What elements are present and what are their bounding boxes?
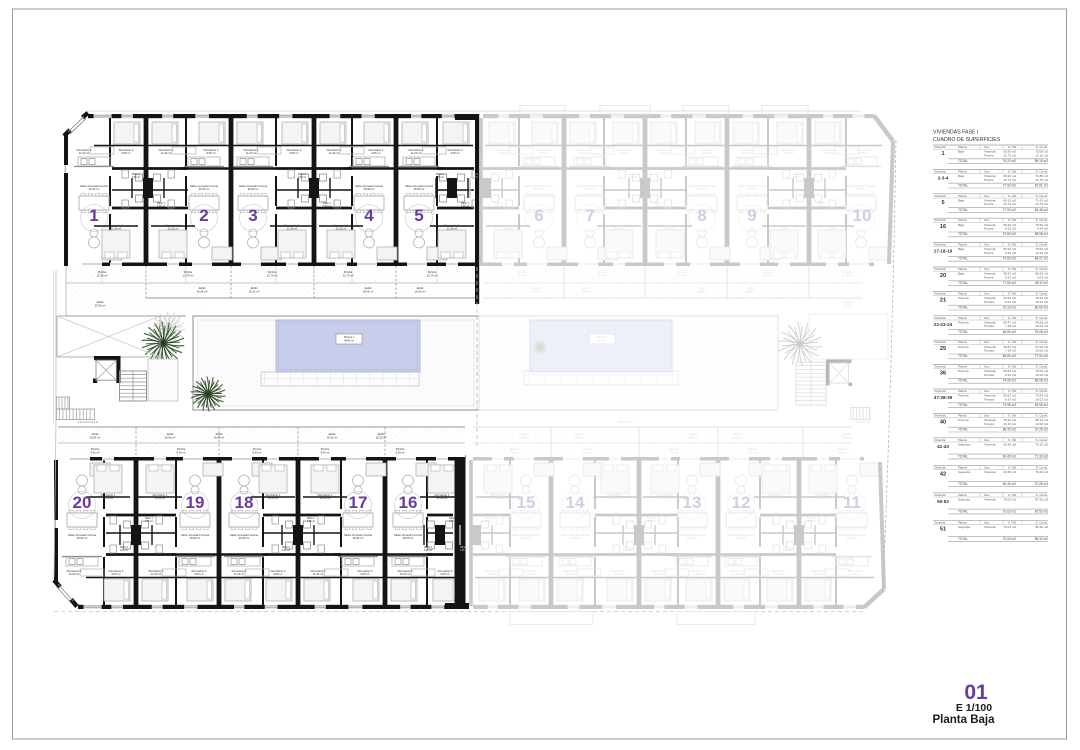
svg-text:3.05 m²: 3.05 m²: [629, 176, 637, 179]
svg-text:20.90 m²: 20.90 m²: [747, 187, 758, 191]
svg-text:Jardín: Jardín: [215, 432, 223, 436]
svg-text:10.03 m2: 10.03 m2: [1035, 324, 1048, 328]
svg-text:TOTAL: TOTAL: [958, 257, 968, 261]
svg-text:9.05 m²: 9.05 m²: [121, 151, 130, 155]
svg-text:3.05 m²: 3.05 m²: [623, 549, 631, 552]
svg-text:Vivienda: Vivienda: [934, 493, 946, 497]
svg-text:87.53 m2: 87.53 m2: [1035, 497, 1048, 501]
svg-text:Jardín: Jardín: [698, 286, 706, 290]
svg-text:Porche: Porche: [344, 270, 353, 274]
svg-text:7.18 m2: 7.18 m2: [1005, 324, 1016, 328]
svg-text:Porche: Porche: [984, 178, 994, 182]
svg-text:S. Útil: S. Útil: [1008, 290, 1016, 295]
svg-text:Vivienda: Vivienda: [934, 365, 946, 369]
svg-text:Vivienda: Vivienda: [984, 442, 996, 446]
svg-text:Porche: Porche: [184, 270, 193, 274]
svg-text:Jardín: Jardín: [733, 432, 741, 436]
svg-text:Porche: Porche: [843, 270, 852, 274]
svg-text:S. Útil: S. Útil: [1008, 492, 1016, 497]
svg-text:Jardín: Jardín: [843, 432, 851, 436]
svg-text:83.56 m2: 83.56 m2: [1035, 403, 1049, 407]
svg-text:3.05 m²: 3.05 m²: [132, 176, 140, 179]
svg-text:60.45 m2: 60.45 m2: [1003, 470, 1016, 474]
svg-text:74.95 m2: 74.95 m2: [1003, 379, 1017, 383]
svg-text:Jardín: Jardín: [166, 432, 174, 436]
svg-text:Vivienda: Vivienda: [934, 389, 946, 393]
svg-text:70.13 m2: 70.13 m2: [1003, 305, 1017, 309]
svg-text:20.90 m²: 20.90 m²: [364, 187, 375, 191]
svg-text:11.00 m²: 11.00 m²: [818, 496, 829, 500]
svg-text:9.05 m²: 9.05 m²: [851, 572, 860, 576]
svg-text:11.00 m²: 11.00 m²: [779, 227, 790, 231]
svg-text:S. Útil: S. Útil: [1008, 193, 1016, 198]
svg-text:22-23-24: 22-23-24: [934, 322, 953, 327]
svg-text:11.00 m²: 11.00 m²: [437, 496, 448, 500]
svg-text:9.05 m²: 9.05 m²: [289, 151, 298, 155]
svg-text:S. Útil: S. Útil: [1008, 519, 1016, 524]
svg-text:S. Útil: S. Útil: [1008, 168, 1016, 173]
svg-text:9.03 m2: 9.03 m2: [1037, 275, 1048, 279]
svg-text:S. Const.: S. Const.: [1036, 145, 1049, 149]
svg-text:Porche: Porche: [98, 270, 107, 274]
svg-text:17: 17: [349, 493, 368, 512]
svg-text:2: 2: [199, 206, 208, 225]
svg-text:77.93 m2: 77.93 m2: [1003, 183, 1017, 187]
svg-text:9.05 m²: 9.05 m²: [360, 572, 369, 576]
svg-text:Uso: Uso: [984, 465, 990, 469]
svg-text:3.05 m²: 3.05 m²: [461, 205, 469, 208]
svg-text:Porche: Porche: [764, 270, 773, 274]
svg-text:E 1/100: E 1/100: [956, 702, 992, 714]
svg-text:TOTAL: TOTAL: [958, 509, 968, 513]
svg-text:11.00 m²: 11.00 m²: [579, 151, 590, 155]
svg-text:Baja: Baja: [958, 174, 964, 178]
svg-text:16.05 m²: 16.05 m²: [532, 290, 543, 294]
svg-text:16.30 m²: 16.30 m²: [376, 436, 387, 440]
svg-text:Porche: Porche: [91, 447, 100, 451]
svg-text:9.05 m²: 9.05 m²: [859, 151, 868, 155]
svg-text:23.20 m²: 23.20 m²: [843, 304, 854, 308]
svg-text:11.00 m²: 11.00 m²: [660, 151, 671, 155]
svg-text:9.05 m²: 9.05 m²: [440, 572, 449, 576]
svg-text:S. Útil: S. Útil: [1008, 388, 1016, 393]
svg-text:12.30 m²: 12.30 m²: [97, 274, 108, 278]
svg-text:Vivienda: Vivienda: [934, 438, 946, 442]
svg-text:Terraza: Terraza: [984, 300, 994, 304]
svg-text:Primera: Primera: [958, 418, 969, 422]
svg-text:3.05 m²: 3.05 m²: [818, 205, 826, 208]
svg-text:3.05 m²: 3.05 m²: [120, 549, 128, 552]
svg-text:20.90 m²: 20.90 m²: [687, 536, 698, 540]
svg-text:TOTAL: TOTAL: [958, 354, 968, 358]
svg-text:11.00 m²: 11.00 m²: [824, 151, 835, 155]
svg-text:Porche: Porche: [984, 153, 994, 157]
svg-text:11.00 m²: 11.00 m²: [320, 496, 331, 500]
svg-text:1: 1: [89, 206, 98, 225]
svg-text:16.05 m²: 16.05 m²: [197, 290, 208, 294]
svg-text:77.93 m2: 77.93 m2: [1003, 208, 1017, 212]
svg-text:11.00 m²: 11.00 m²: [155, 496, 166, 500]
svg-text:9.05 m²: 9.05 m²: [620, 151, 629, 155]
svg-text:10.02 m2: 10.02 m2: [1035, 373, 1048, 377]
svg-text:1: 1: [941, 151, 944, 157]
svg-text:85.08 m2: 85.08 m2: [1035, 232, 1049, 236]
svg-text:TOTAL: TOTAL: [958, 305, 968, 309]
svg-text:3.05 m²: 3.05 m²: [323, 205, 331, 208]
svg-text:15: 15: [517, 493, 536, 512]
svg-text:2-3-4: 2-3-4: [938, 175, 949, 180]
svg-text:Uso: Uso: [984, 340, 990, 344]
svg-text:TOTAL: TOTAL: [958, 281, 968, 285]
svg-text:85.08 m2: 85.08 m2: [1035, 379, 1049, 383]
svg-text:9.05 m²: 9.05 m²: [526, 572, 535, 576]
svg-text:Planta Baja: Planta Baja: [933, 714, 996, 726]
svg-text:12.70 m²: 12.70 m²: [517, 274, 528, 278]
svg-text:11.00 m²: 11.00 m²: [614, 227, 625, 231]
svg-text:S. Útil: S. Útil: [1008, 412, 1016, 417]
svg-text:14: 14: [566, 493, 585, 512]
svg-text:7: 7: [585, 206, 594, 225]
svg-text:3.05 m²: 3.05 m²: [648, 520, 656, 523]
svg-text:Planta: Planta: [958, 340, 967, 344]
svg-text:Terraza: Terraza: [984, 373, 994, 377]
svg-text:9.05 m²: 9.05 m²: [450, 151, 459, 155]
svg-text:20.90 m²: 20.90 m²: [403, 536, 414, 540]
svg-text:20.90 m²: 20.90 m²: [77, 536, 88, 540]
svg-text:60.45 m2: 60.45 m2: [1003, 454, 1017, 458]
svg-text:5: 5: [414, 206, 423, 225]
svg-text:Porche: Porche: [984, 275, 994, 279]
svg-text:Primera: Primera: [958, 394, 969, 398]
svg-text:TOTAL: TOTAL: [958, 330, 968, 334]
svg-text:11.00 m²: 11.00 m²: [498, 151, 509, 155]
svg-text:16: 16: [940, 224, 946, 230]
svg-text:20.90 m²: 20.90 m²: [585, 187, 596, 191]
svg-text:37-38-39: 37-38-39: [934, 395, 953, 400]
svg-text:9.30 m²: 9.30 m²: [582, 451, 591, 455]
svg-text:77.02 m2: 77.02 m2: [1035, 354, 1049, 358]
svg-text:80.65 m2: 80.65 m2: [1035, 305, 1049, 309]
svg-text:3.05 m²: 3.05 m²: [424, 549, 432, 552]
svg-text:44.30 m²: 44.30 m²: [597, 340, 607, 343]
svg-text:20.90 m²: 20.90 m²: [570, 536, 581, 540]
svg-text:Uso: Uso: [984, 194, 990, 198]
svg-text:20.90 m²: 20.90 m²: [847, 536, 858, 540]
svg-text:16.85 m²: 16.85 m²: [90, 436, 101, 440]
svg-text:Uso: Uso: [984, 413, 990, 417]
svg-text:S. Const.: S. Const.: [1036, 291, 1049, 295]
svg-text:36: 36: [940, 371, 946, 377]
svg-text:84.21 m2: 84.21 m2: [1035, 257, 1049, 261]
svg-text:Jardín: Jardín: [250, 286, 258, 290]
svg-text:Planta: Planta: [958, 413, 967, 417]
svg-text:12.70 m²: 12.70 m²: [763, 274, 774, 278]
svg-text:Baja: Baja: [958, 198, 964, 202]
svg-text:Porche: Porche: [598, 270, 607, 274]
svg-text:Porche: Porche: [321, 447, 330, 451]
svg-text:74.53 m2: 74.53 m2: [1003, 232, 1017, 236]
svg-text:86.30 m2: 86.30 m2: [1035, 537, 1049, 541]
svg-text:TOTAL: TOTAL: [958, 232, 968, 236]
svg-text:70.25 m2: 70.25 m2: [1035, 482, 1049, 486]
svg-text:S. Útil: S. Útil: [1008, 242, 1016, 247]
svg-text:70.25 m2: 70.25 m2: [1035, 470, 1048, 474]
svg-text:97.25 m2: 97.25 m2: [1035, 427, 1049, 431]
svg-text:9.30 m²: 9.30 m²: [176, 451, 185, 455]
svg-text:S. Const.: S. Const.: [1036, 194, 1049, 198]
svg-text:86.30 m2: 86.30 m2: [1035, 525, 1048, 529]
svg-text:16.05 m²: 16.05 m²: [697, 290, 708, 294]
svg-text:Porche: Porche: [396, 447, 405, 451]
svg-text:20.90 m²: 20.90 m²: [239, 536, 250, 540]
svg-text:9.05 m²: 9.05 m²: [273, 572, 282, 576]
svg-text:9.05 m²: 9.05 m²: [194, 572, 203, 576]
svg-text:16.25 m²: 16.25 m²: [415, 290, 426, 294]
svg-text:Jardín: Jardín: [746, 286, 754, 290]
svg-text:S. Útil: S. Útil: [1008, 266, 1016, 271]
svg-text:11.00 m²: 11.00 m²: [411, 151, 422, 155]
svg-text:Planta: Planta: [958, 194, 967, 198]
svg-text:76.08 m2: 76.08 m2: [1035, 330, 1049, 334]
svg-text:TOTAL: TOTAL: [958, 208, 968, 212]
svg-text:Primera: Primera: [958, 369, 969, 373]
svg-text:Uso: Uso: [984, 291, 990, 295]
svg-text:10.03 m2: 10.03 m2: [1035, 300, 1048, 304]
svg-text:Jardín: Jardín: [575, 432, 583, 436]
svg-text:20.90 m²: 20.90 m²: [521, 536, 532, 540]
svg-text:Planta: Planta: [958, 145, 967, 149]
svg-text:Segunda: Segunda: [958, 525, 970, 529]
svg-text:Jardín: Jardín: [533, 286, 541, 290]
svg-text:11.00 m²: 11.00 m²: [161, 151, 172, 155]
svg-text:16.25 m²: 16.25 m²: [249, 290, 260, 294]
svg-text:11.00 m²: 11.00 m²: [814, 572, 825, 576]
svg-text:S. Útil: S. Útil: [1008, 315, 1016, 320]
svg-text:71.33 m2: 71.33 m2: [1035, 454, 1049, 458]
svg-text:20.90 m²: 20.90 m²: [89, 187, 100, 191]
svg-text:11.00 m²: 11.00 m²: [447, 227, 458, 231]
svg-text:86.45 m2: 86.45 m2: [1003, 427, 1017, 431]
svg-text:Vivienda: Vivienda: [984, 470, 996, 474]
svg-text:3: 3: [248, 206, 257, 225]
svg-text:85.18 m2: 85.18 m2: [1035, 159, 1049, 163]
svg-text:S. Const.: S. Const.: [1036, 365, 1049, 369]
svg-text:S. Útil: S. Útil: [1008, 364, 1016, 369]
svg-text:9.05 m²: 9.05 m²: [111, 572, 120, 576]
svg-text:11.00 m²: 11.00 m²: [329, 151, 340, 155]
svg-text:Terraza: Terraza: [984, 397, 994, 401]
svg-text:19: 19: [186, 493, 205, 512]
svg-text:20.90 m²: 20.90 m²: [248, 187, 259, 191]
svg-text:Vivienda: Vivienda: [934, 413, 946, 417]
svg-text:S. Const.: S. Const.: [1036, 243, 1049, 247]
svg-text:Uso: Uso: [984, 365, 990, 369]
svg-text:11.00 m²: 11.00 m²: [733, 572, 744, 576]
svg-text:Planta: Planta: [958, 267, 967, 271]
svg-text:Vivienda: Vivienda: [934, 291, 946, 295]
svg-text:12.70 m²: 12.70 m²: [343, 274, 354, 278]
svg-text:3.05 m²: 3.05 m²: [470, 176, 478, 179]
svg-text:Planta: Planta: [958, 438, 967, 442]
svg-text:9.30 m²: 9.30 m²: [320, 451, 329, 455]
svg-text:Uso: Uso: [984, 267, 990, 271]
svg-text:TOTAL: TOTAL: [958, 454, 968, 458]
svg-text:Planta: Planta: [958, 243, 967, 247]
svg-text:11.00 m²: 11.00 m²: [287, 227, 298, 231]
svg-text:Porche: Porche: [583, 447, 592, 451]
svg-text:11.00 m²: 11.00 m²: [268, 496, 279, 500]
svg-text:Terraza: Terraza: [984, 422, 994, 426]
svg-text:S. Const.: S. Const.: [1036, 389, 1049, 393]
svg-text:10.02 m2: 10.02 m2: [1035, 397, 1048, 401]
svg-text:Porche: Porche: [984, 202, 994, 206]
svg-text:Planta: Planta: [958, 465, 967, 469]
svg-text:9.33 m2: 9.33 m2: [1005, 397, 1016, 401]
svg-text:Jardín: Jardín: [96, 300, 104, 304]
svg-text:66.65 m2: 66.65 m2: [1003, 330, 1017, 334]
svg-text:9.42 m2: 9.42 m2: [1037, 227, 1048, 231]
svg-text:12.70 m²: 12.70 m²: [597, 274, 608, 278]
svg-text:41-43: 41-43: [937, 444, 949, 449]
svg-text:Uso: Uso: [984, 316, 990, 320]
svg-text:Planta: Planta: [958, 389, 967, 393]
svg-text:Porche: Porche: [518, 270, 527, 274]
svg-text:Vivienda: Vivienda: [934, 520, 946, 524]
svg-text:51: 51: [940, 526, 946, 532]
svg-text:60.45 m2: 60.45 m2: [1003, 482, 1017, 486]
svg-text:6: 6: [534, 206, 543, 225]
svg-text:25: 25: [940, 346, 946, 352]
svg-text:89.11 m2: 89.11 m2: [1035, 281, 1048, 285]
svg-text:S. Const.: S. Const.: [1036, 493, 1049, 497]
svg-text:10.02 m2: 10.02 m2: [1035, 349, 1048, 353]
svg-text:3.05 m²: 3.05 m²: [460, 549, 468, 552]
svg-text:3.05 m²: 3.05 m²: [436, 176, 444, 179]
svg-text:Jardín: Jardín: [364, 286, 372, 290]
svg-text:11.00 m²: 11.00 m²: [654, 572, 665, 576]
svg-text:Vivienda: Vivienda: [934, 267, 946, 271]
svg-text:8: 8: [697, 206, 706, 225]
svg-text:Jardín: Jardín: [520, 432, 528, 436]
svg-text:4: 4: [364, 206, 374, 225]
svg-text:16.00 m²: 16.00 m²: [214, 436, 225, 440]
svg-text:3.05 m²: 3.05 m²: [145, 520, 153, 523]
svg-text:Vivienda: Vivienda: [984, 497, 996, 501]
svg-text:Uso: Uso: [984, 520, 990, 524]
svg-text:Uso: Uso: [984, 493, 990, 497]
svg-text:9.30 m²: 9.30 m²: [837, 451, 846, 455]
svg-text:16.05 m²: 16.05 m²: [745, 290, 756, 294]
svg-text:10: 10: [853, 206, 872, 225]
svg-text:9.05 m²: 9.05 m²: [784, 151, 793, 155]
svg-text:S. Const.: S. Const.: [1036, 438, 1049, 442]
svg-text:Jardín: Jardín: [689, 432, 697, 436]
svg-text:S. Útil: S. Útil: [1008, 144, 1016, 149]
svg-text:Uso: Uso: [984, 218, 990, 222]
svg-text:20: 20: [73, 493, 92, 512]
svg-text:Porche: Porche: [268, 270, 277, 274]
svg-text:11.00 m²: 11.00 m²: [493, 496, 504, 500]
svg-text:3.05 m²: 3.05 m²: [495, 205, 503, 208]
svg-text:1.90 3.73 0.64: 1.90 3.73 0.64: [617, 421, 633, 424]
svg-text:Porche: Porche: [510, 447, 519, 451]
svg-text:01: 01: [964, 681, 988, 704]
svg-text:4.40 2.70 0.90 2.11: 4.40 2.70 0.90 2.11: [78, 421, 99, 424]
svg-text:20.90 m²: 20.90 m²: [736, 536, 747, 540]
svg-text:42: 42: [940, 471, 946, 477]
svg-text:11.00 m²: 11.00 m²: [336, 227, 347, 231]
svg-text:9.30 m²: 9.30 m²: [669, 451, 678, 455]
svg-text:16.05 m²: 16.05 m²: [363, 290, 374, 294]
svg-text:17-18-19: 17-18-19: [934, 249, 953, 254]
svg-text:Baja: Baja: [958, 223, 964, 227]
svg-text:Planta: Planta: [958, 291, 967, 295]
svg-text:Primera: Primera: [958, 296, 969, 300]
svg-text:6.63 m2: 6.63 m2: [1005, 300, 1016, 304]
svg-text:Uso: Uso: [984, 169, 990, 173]
svg-text:5: 5: [941, 200, 944, 206]
svg-text:16.30 m²: 16.30 m²: [327, 436, 338, 440]
svg-text:Planta: Planta: [958, 218, 967, 222]
svg-text:11: 11: [843, 493, 861, 512]
svg-text:20: 20: [940, 273, 946, 279]
svg-text:11.00 m²: 11.00 m²: [168, 227, 179, 231]
svg-text:12.73 m2: 12.73 m2: [1003, 153, 1016, 157]
svg-text:Jardín: Jardín: [377, 432, 385, 436]
svg-text:TOTAL: TOTAL: [958, 537, 968, 541]
svg-text:Uso: Uso: [984, 389, 990, 393]
svg-text:60.45 m2: 60.45 m2: [1003, 442, 1016, 446]
svg-text:9.30 m²: 9.30 m²: [509, 451, 518, 455]
svg-text:Terraza: Terraza: [984, 349, 994, 353]
svg-text:Primera: Primera: [958, 320, 969, 324]
svg-text:16: 16: [399, 493, 418, 512]
svg-text:11.00 m²: 11.00 m²: [771, 496, 782, 500]
svg-text:Terraza: Terraza: [984, 324, 994, 328]
svg-text:Vivienda: Vivienda: [934, 169, 946, 173]
svg-text:75.03 m2: 75.03 m2: [1003, 509, 1017, 513]
svg-text:CUADRO DE SUPERFICIES: CUADRO DE SUPERFICIES: [933, 137, 1001, 143]
svg-text:3.05 m²: 3.05 m²: [808, 520, 816, 523]
svg-text:9.05 m²: 9.05 m²: [614, 572, 623, 576]
svg-text:TOTAL: TOTAL: [958, 482, 968, 486]
svg-text:11.21 m2: 11.21 m2: [1036, 251, 1049, 255]
svg-text:TOTAL: TOTAL: [958, 159, 968, 163]
svg-text:Segunda: Segunda: [958, 442, 970, 446]
svg-text:9.05 m²: 9.05 m²: [539, 151, 548, 155]
svg-text:S. Útil: S. Útil: [1008, 339, 1016, 344]
svg-text:Porche: Porche: [253, 447, 262, 451]
svg-text:12.73 m2: 12.73 m2: [1003, 178, 1016, 182]
svg-text:9.30 m²: 9.30 m²: [252, 451, 261, 455]
svg-text:3.05 m²: 3.05 m²: [298, 176, 306, 179]
svg-text:13: 13: [683, 493, 702, 512]
svg-text:75.03 m2: 75.03 m2: [1003, 525, 1016, 529]
svg-text:11.00 m²: 11.00 m²: [69, 572, 80, 576]
svg-text:9.05 m²: 9.05 m²: [371, 151, 380, 155]
svg-text:16.00 m²: 16.00 m²: [519, 436, 530, 440]
svg-text:87.53 m2: 87.53 m2: [1035, 509, 1049, 513]
svg-text:16.00 m²: 16.00 m²: [842, 436, 853, 440]
svg-text:Porche: Porche: [670, 447, 679, 451]
svg-text:12.10 m2: 12.10 m2: [1035, 153, 1048, 157]
svg-text:9.60 m²: 9.60 m²: [90, 451, 99, 455]
svg-text:Uso: Uso: [984, 145, 990, 149]
svg-text:16.00 m²: 16.00 m²: [574, 436, 585, 440]
svg-text:20.90 m²: 20.90 m²: [353, 536, 364, 540]
svg-text:11.00 m²: 11.00 m²: [313, 572, 324, 576]
svg-text:Vivienda: Vivienda: [934, 194, 946, 198]
